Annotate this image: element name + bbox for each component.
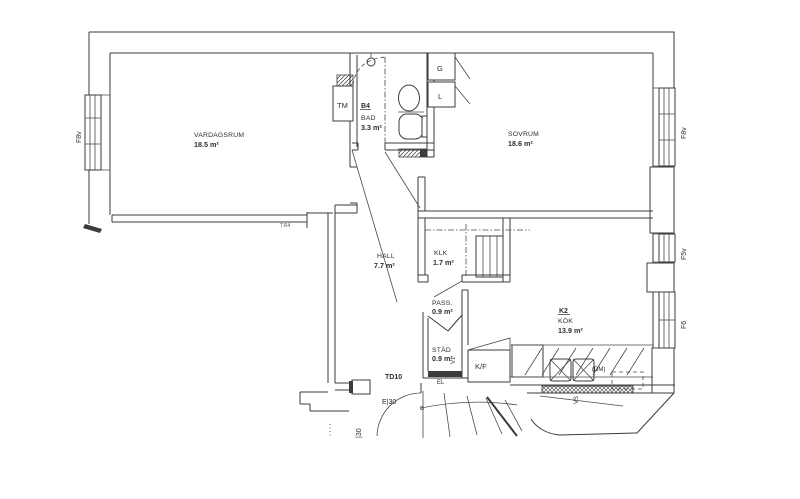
g-closet-label: G (437, 64, 443, 73)
window-f5v (653, 234, 675, 262)
stairwell (349, 380, 522, 438)
kok-code: K2 (559, 308, 568, 315)
f8v-left-label: F8v (76, 131, 83, 143)
hall-area: 7.7 m² (374, 261, 395, 270)
td10-label: TD10 (385, 374, 402, 381)
stad-details (428, 371, 462, 377)
td10-door-pocket (352, 380, 370, 394)
v1-label: V1 (451, 356, 457, 364)
floor-plan: VARDAGSRUM 18.5 m² SOVRUM 18.6 m² B4 BAD… (0, 0, 800, 499)
kok-area: 13.9 m² (558, 326, 583, 335)
wall-micro-note: T.R4 (280, 223, 291, 229)
facade-piers (647, 167, 674, 393)
sovrum-area: 18.6 m² (508, 139, 533, 148)
bad-area: 3.3 m² (361, 123, 382, 132)
f5v-label: F5v (681, 248, 688, 260)
kitchen (468, 338, 653, 406)
sink-icon (399, 85, 420, 111)
i30-label: |30 (356, 428, 363, 438)
f8v-right-label: F8v (681, 127, 688, 139)
vardagsrum-area: 18.5 m² (194, 140, 219, 149)
stad-name: STÄD (432, 346, 451, 354)
hall-name: HALL (377, 253, 395, 260)
klk-area: 1.7 m² (433, 258, 454, 267)
dm-label: (DM) (592, 367, 605, 373)
e30-label: E|30 (382, 399, 396, 406)
klk-door-leaf (434, 281, 462, 297)
vs-label: VS (574, 396, 580, 404)
el-cabinet (428, 371, 462, 377)
toilet-icon (399, 114, 423, 139)
window-right-f8v (653, 88, 675, 166)
window-f6 (653, 292, 675, 348)
exterior-walls (83, 32, 674, 435)
wall-niche-hatch (337, 75, 353, 86)
el-label: EL (437, 380, 445, 386)
bedroom-door-leaf (385, 152, 420, 208)
tm-label: TM (337, 101, 348, 110)
stair-treads (423, 391, 522, 438)
klk-shelves (476, 236, 503, 277)
pass-name: PASS. (432, 300, 453, 307)
sovrum-name: SOVRUM (508, 131, 539, 138)
vardagsrum-name: VARDAGSRUM (194, 132, 244, 139)
l-closet-label: L (438, 92, 442, 101)
window-left-f8v (85, 95, 110, 170)
window-sill-band (542, 386, 633, 393)
f6-label: F6 (681, 321, 688, 329)
hall-door-leaf-long (352, 150, 397, 302)
bad-code: B4 (361, 103, 370, 110)
kok-name: KÖK (558, 317, 573, 325)
bad-name: BAD (361, 115, 376, 122)
wall-cut-hatch (83, 224, 102, 233)
kf-label: K/F (475, 362, 487, 371)
pass-area: 0.9 m² (432, 307, 453, 316)
bedroom-closets (428, 53, 470, 107)
klk-name: KLK (434, 250, 448, 257)
